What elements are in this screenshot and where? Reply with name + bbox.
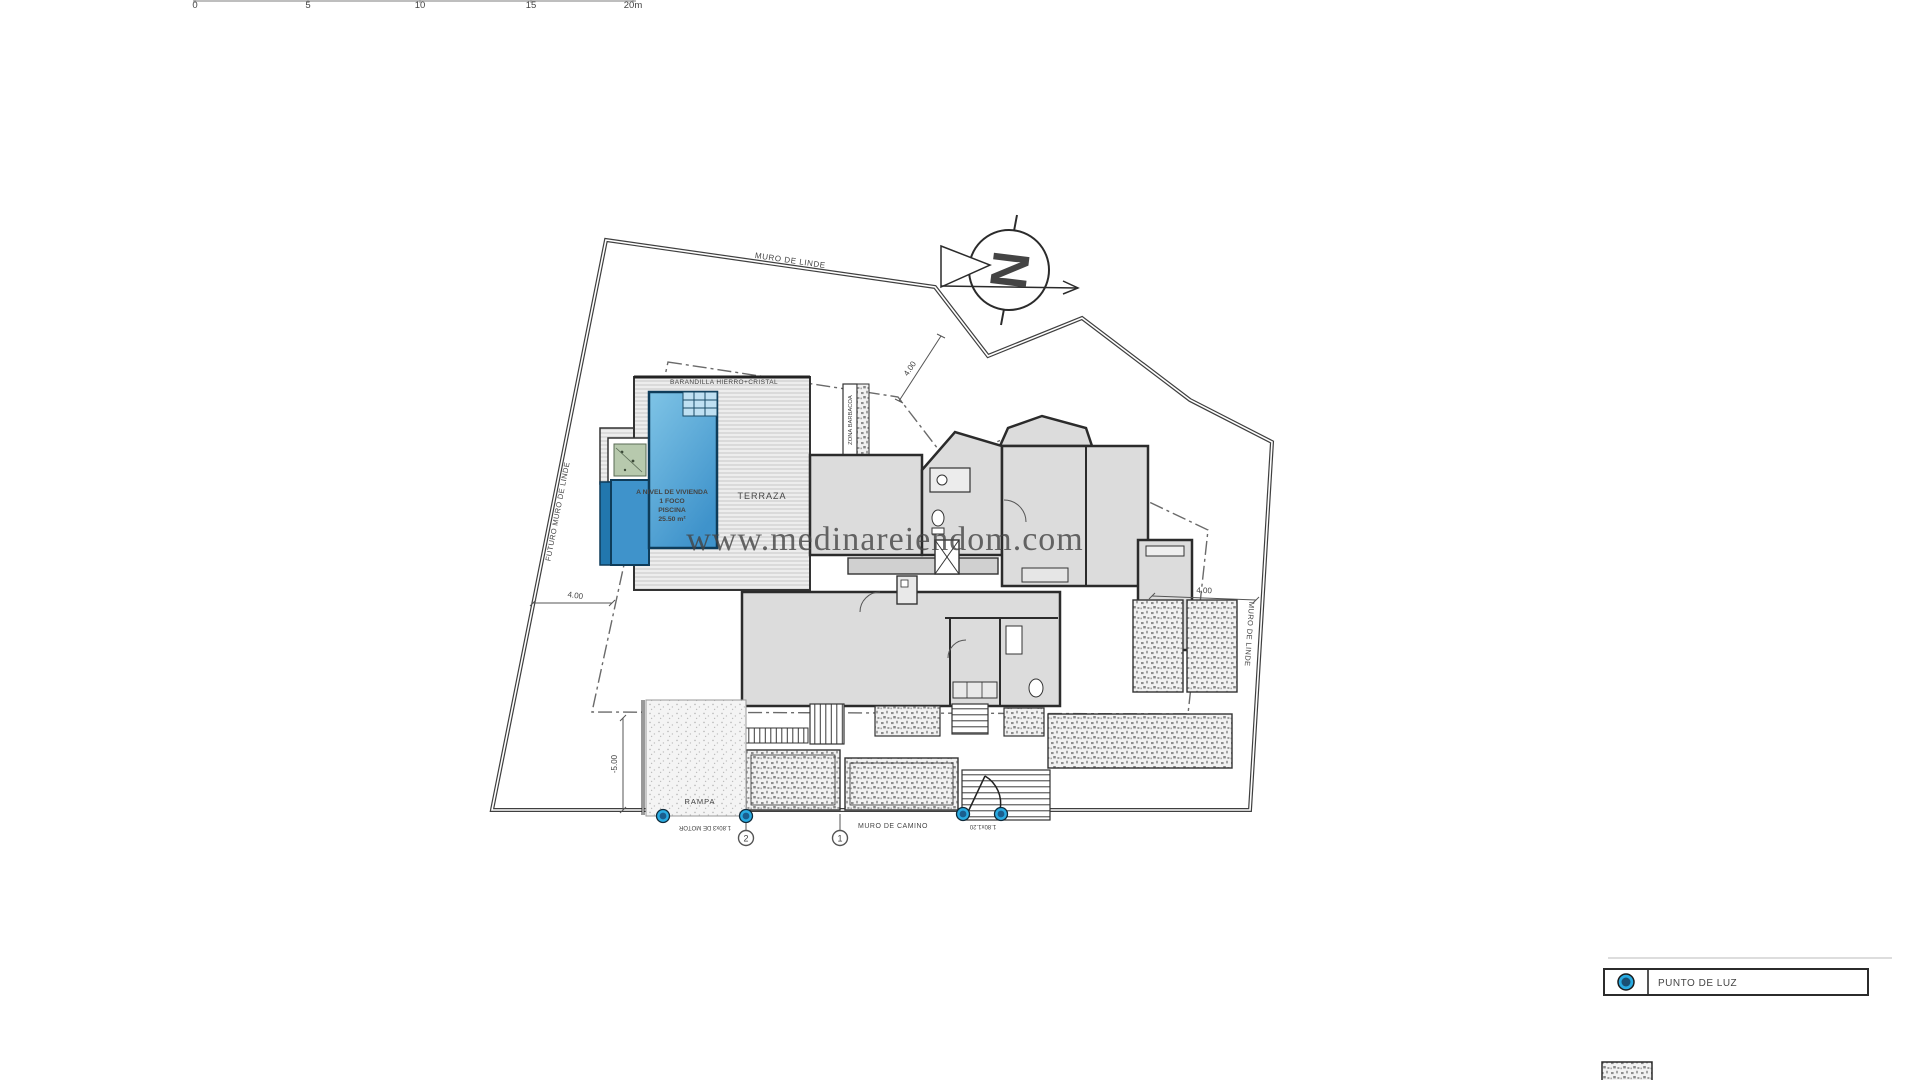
light-point-dot [957,808,970,821]
gravel-east-1 [1133,600,1183,692]
scale-label-15: 15 [526,0,537,11]
right-wall-label: MURO DE LINDE [1243,602,1256,667]
scale-label-5: 5 [305,0,310,11]
pedestrian-gate-label: 1.80x1.20 [969,823,996,829]
pool-label-line3: PISCINA [658,507,686,514]
north-arrow: N [941,215,1078,325]
site-plan-drawing: 0 5 10 15 20m BARANDILLA HIERRO+CRISTAL [0,0,1920,1080]
room-northeast [1002,446,1148,586]
gravel-bottom-left [746,750,840,810]
light-point-dot [995,808,1008,821]
gravel-east-2 [1187,600,1237,692]
ramp-label: RAMPA [684,797,715,806]
north-letter: N [978,248,1040,292]
legend-light-point-row: PUNTO DE LUZ [1604,969,1868,995]
marker-circle-2: 2 [739,823,754,846]
gravel-bottom-middle [845,758,958,810]
legend-light-point-icon [1618,974,1634,990]
bbq-label: ZONA BARBACOA [848,395,854,445]
light-point-dot [740,810,753,823]
pool-label-line1: A NIVEL DE VIVIENDA [636,489,708,496]
gravel-south-small-2 [1004,708,1044,736]
pool-label-line2: 1 FOCO [659,498,684,505]
bbq-strip: ZONA BARBACOA [843,384,869,456]
dimension-left: 4.00 [567,590,584,601]
dimension-bottom-level: -5.00 [610,754,619,773]
terrace-label: TERRAZA [737,491,786,501]
marker-circle-1: 1 [833,814,848,846]
planter [608,438,652,482]
gravel-southeast [1048,714,1232,768]
scale-label-10: 10 [415,0,426,11]
svg-text:2: 2 [743,834,748,844]
dimension-right: 4.00 [1196,586,1212,596]
bottom-wall-label: MURO DE CAMINO [858,823,928,830]
pool-steps [683,392,717,416]
watermark-text: www.medinareiendom.com [686,521,1083,558]
gravel-south-small-1 [875,706,940,736]
legend: PUNTO DE LUZ [1602,958,1892,1080]
stairs-middle [952,704,988,734]
site-plan-page: 0 5 10 15 20m BARANDILLA HIERRO+CRISTAL [0,0,1920,1080]
ramp-area: RAMPA [643,700,746,816]
stairs-west-low [740,728,808,743]
light-point-dot [657,810,670,823]
legend-light-point-label: PUNTO DE LUZ [1658,978,1737,989]
pool-label-line4: 25.50 m² [658,516,686,523]
scale-label-20m: 20m [624,0,643,11]
motor-gate-label: 1.80x3 DE MOTOR [678,824,731,830]
scale-label-0: 0 [192,0,197,11]
stairs-west [810,704,844,744]
railing-label: BARANDILLA HIERRO+CRISTAL [670,379,778,386]
pool-edge-strip [600,482,611,565]
scale-bar: 0 5 10 15 20m [192,0,642,11]
svg-text:1: 1 [837,834,842,844]
legend-gravel-swatch [1602,1062,1652,1080]
